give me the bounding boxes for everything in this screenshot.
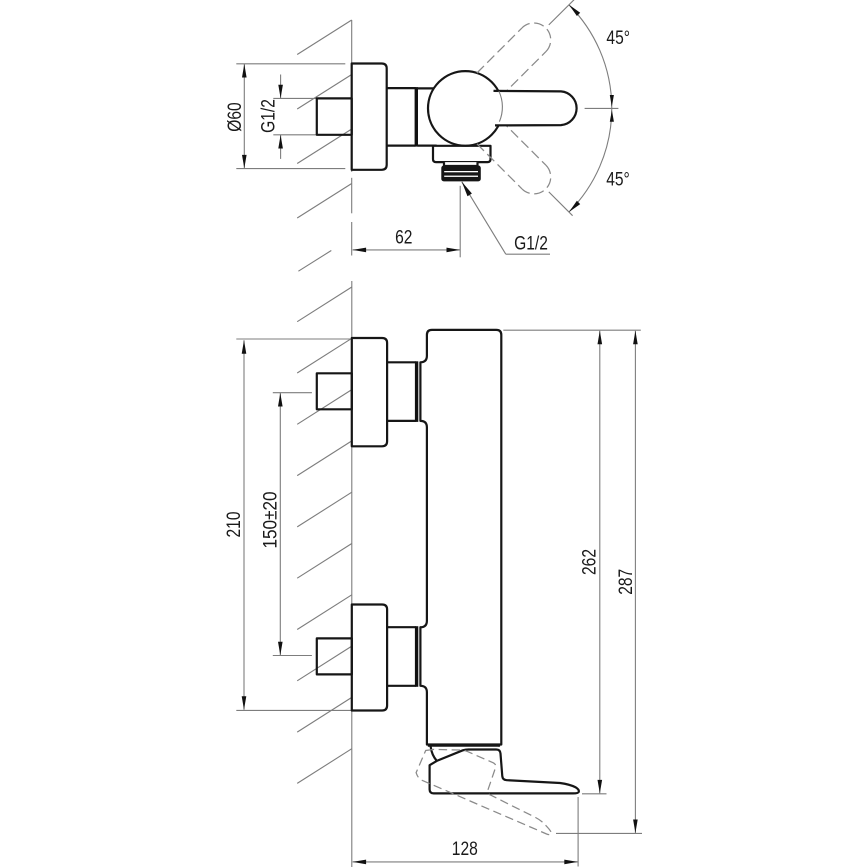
svg-text:G1/2: G1/2 bbox=[257, 99, 279, 133]
svg-text:150±20: 150±20 bbox=[258, 491, 280, 548]
svg-text:G1/2: G1/2 bbox=[514, 232, 548, 254]
svg-text:45°: 45° bbox=[606, 27, 630, 49]
svg-text:128: 128 bbox=[452, 838, 478, 860]
svg-text:262: 262 bbox=[578, 549, 600, 575]
svg-text:Ø60: Ø60 bbox=[223, 102, 245, 132]
svg-text:287: 287 bbox=[614, 569, 636, 595]
svg-text:62: 62 bbox=[395, 226, 412, 248]
svg-text:210: 210 bbox=[222, 511, 244, 537]
svg-text:45°: 45° bbox=[606, 168, 630, 190]
